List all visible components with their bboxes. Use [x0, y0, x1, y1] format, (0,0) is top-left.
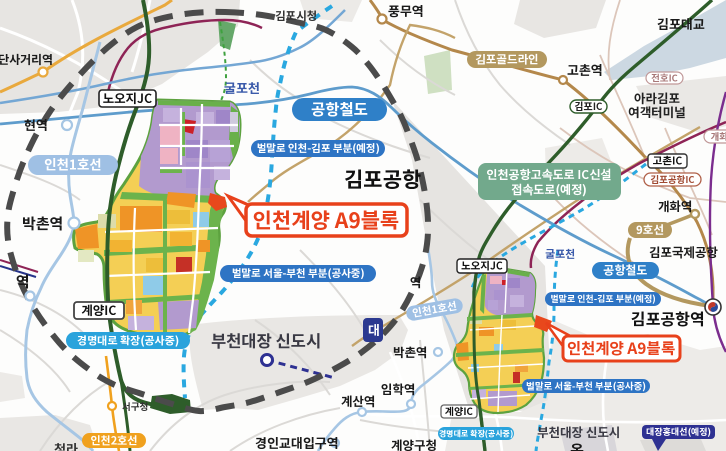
svg-text:김포국제공항: 김포국제공항 — [649, 242, 719, 261]
svg-text:김포시청: 김포시청 — [275, 8, 317, 24]
svg-text:노오지JC: 노오지JC — [461, 259, 503, 274]
svg-text:박촌역: 박촌역 — [22, 213, 63, 234]
svg-text:부천대장 신도시: 부천대장 신도시 — [537, 422, 620, 441]
svg-text:계산역: 계산역 — [341, 391, 376, 410]
svg-text:벌말로 서울-부천 부분(공사중): 벌말로 서울-부천 부분(공사중) — [232, 266, 365, 281]
svg-text:청라: 청라 — [54, 439, 78, 451]
svg-text:역: 역 — [410, 272, 422, 291]
svg-text:계양IC: 계양IC — [81, 300, 117, 319]
svg-text:계양구청: 계양구청 — [391, 435, 437, 451]
svg-text:고촌역: 고촌역 — [567, 60, 603, 79]
svg-text:경인교대입구역: 경인교대입구역 — [255, 433, 339, 451]
svg-text:서구청: 서구청 — [122, 399, 148, 413]
svg-text:옹: 옹 — [570, 440, 584, 451]
svg-text:김포공항역: 김포공항역 — [631, 306, 705, 330]
svg-text:인천2호선: 인천2호선 — [91, 432, 138, 448]
svg-text:개화IC: 개화IC — [711, 129, 726, 143]
svg-text:계양IC: 계양IC — [445, 403, 474, 418]
svg-text:공항철도: 공항철도 — [603, 262, 647, 279]
svg-text:벌말로 인천-김포 부분(예정): 벌말로 인천-김포 부분(예정) — [257, 141, 380, 156]
svg-text:굴포천: 굴포천 — [224, 78, 260, 97]
svg-text:개화역: 개화역 — [658, 196, 693, 215]
svg-text:김포공항: 김포공항 — [344, 164, 422, 194]
svg-text:인천계양 A9블록: 인천계양 A9블록 — [253, 205, 400, 235]
svg-text:경명대로 확장(공사중): 경명대로 확장(공사중) — [77, 332, 179, 348]
svg-text:벌말로 서울-부천 부분(공사중): 벌말로 서울-부천 부분(공사중) — [526, 378, 646, 392]
svg-text:임학역: 임학역 — [381, 379, 416, 398]
svg-text:김포골드라인: 김포골드라인 — [475, 52, 538, 68]
svg-text:여객터미널: 여객터미널 — [628, 102, 686, 121]
svg-text:굴포천: 굴포천 — [545, 246, 575, 262]
svg-text:인천1호선: 인천1호선 — [44, 154, 102, 174]
svg-text:공항철도: 공항철도 — [311, 98, 368, 120]
svg-text:대장홍대선(예정): 대장홍대선(예정) — [646, 425, 711, 438]
svg-text:역: 역 — [16, 271, 30, 292]
svg-text:전호IC: 전호IC — [651, 70, 679, 84]
svg-text:현역: 현역 — [24, 115, 48, 134]
svg-text:고촌IC: 고촌IC — [653, 154, 683, 169]
svg-text:김포IC: 김포IC — [574, 98, 603, 113]
svg-text:단사거리역: 단사거리역 — [0, 51, 53, 68]
svg-text:김포공항IC: 김포공항IC — [650, 172, 695, 186]
svg-text:대: 대 — [368, 320, 380, 339]
svg-text:9호선: 9호선 — [636, 222, 664, 238]
svg-text:김포대교: 김포대교 — [657, 14, 705, 33]
svg-text:박촌역: 박촌역 — [393, 342, 428, 361]
svg-text:부천대장 신도시: 부천대장 신도시 — [211, 328, 321, 352]
svg-text:인천계양 A9블록: 인천계양 A9블록 — [567, 337, 675, 359]
svg-text:풍무역: 풍무역 — [388, 1, 424, 20]
svg-text:벌말로 인천-김포 부분(예정): 벌말로 인천-김포 부분(예정) — [550, 292, 656, 305]
svg-text:접속도로(예정): 접속도로(예정) — [511, 181, 586, 198]
svg-text:노오지JC: 노오지JC — [103, 88, 154, 107]
svg-text:경명대로 확장(공사중): 경명대로 확장(공사중) — [439, 428, 513, 439]
